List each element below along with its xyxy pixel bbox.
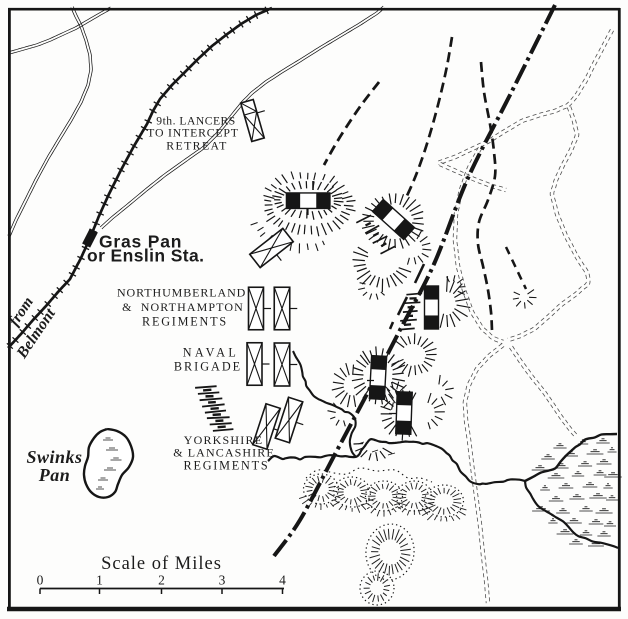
svg-text:Swinks: Swinks <box>26 447 82 467</box>
svg-text:1: 1 <box>96 573 103 588</box>
svg-text:NORTHUMBERLAND: NORTHUMBERLAND <box>117 286 246 300</box>
svg-text:& NORTHAMPTON: & NORTHAMPTON <box>122 300 244 314</box>
svg-text:2: 2 <box>158 573 165 588</box>
svg-text:REGIMENTS: REGIMENTS <box>142 315 228 329</box>
svg-text:3: 3 <box>219 573 226 588</box>
svg-text:REGIMENTS: REGIMENTS <box>184 459 270 473</box>
svg-text:RETREAT: RETREAT <box>166 139 228 153</box>
svg-text:TO INTERCEPT: TO INTERCEPT <box>147 126 239 140</box>
svg-text:BRIGADE: BRIGADE <box>174 360 242 374</box>
svg-text:Pan: Pan <box>38 465 71 485</box>
svg-text:NAVAL: NAVAL <box>183 346 240 360</box>
svg-text:Scale of Miles: Scale of Miles <box>101 554 222 574</box>
svg-text:& LANCASHIRE: & LANCASHIRE <box>173 446 275 460</box>
svg-text:or Enslin Sta.: or Enslin Sta. <box>87 246 204 266</box>
svg-text:4: 4 <box>279 573 286 588</box>
svg-text:0: 0 <box>37 573 44 588</box>
